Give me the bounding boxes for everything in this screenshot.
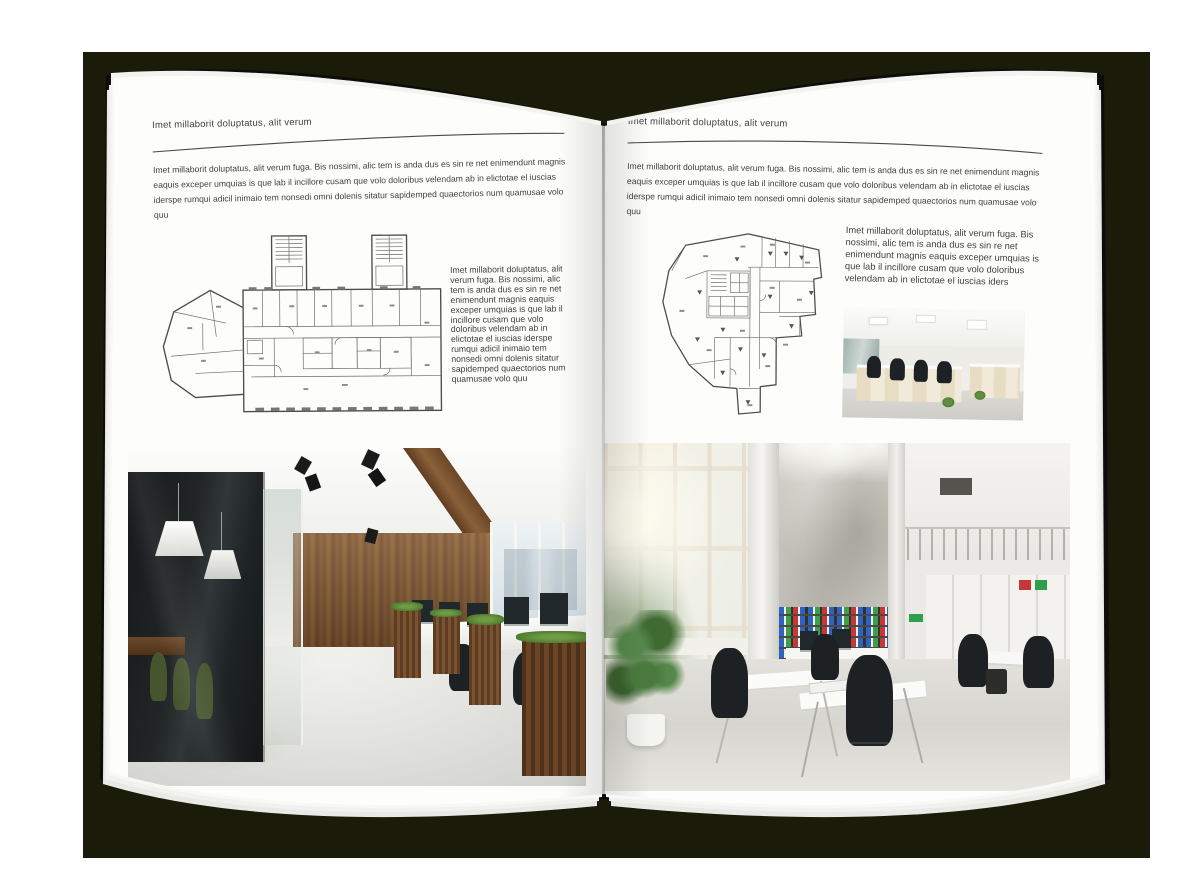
header-rule	[627, 135, 1042, 158]
office-chair	[913, 359, 928, 381]
office-chair	[958, 634, 988, 686]
side-paragraph: Imet millaborit doluptatus, alit verum f…	[450, 264, 570, 385]
exit-sign	[1035, 580, 1047, 589]
office-chair	[890, 358, 905, 380]
planter-grass	[467, 614, 504, 625]
column	[888, 443, 904, 659]
left-page-text-group: Imet millaborit doluptatus, alit verum I…	[152, 111, 584, 223]
left-page: Imet millaborit doluptatus, alit verum I…	[108, 64, 604, 809]
glass-meeting-room	[128, 472, 265, 763]
office-photo-left	[128, 448, 586, 786]
side-paragraph: Imet millaborit doluptatus, alit verum f…	[845, 224, 1048, 289]
wood-planter	[394, 607, 421, 678]
floor-plan-right	[651, 222, 838, 419]
planter-grass	[430, 609, 462, 617]
monitor	[504, 597, 529, 626]
mezzanine-railing	[895, 527, 1070, 560]
office-chair	[711, 648, 748, 718]
glass-reflection	[128, 472, 263, 763]
intro-paragraph: Imet millaborit doluptatus, alit verum f…	[153, 154, 574, 223]
office-chair	[811, 634, 839, 679]
ceiling-light	[916, 314, 936, 323]
monitor	[540, 593, 567, 625]
page-header: Imet millaborit doluptatus, alit verum	[628, 116, 1058, 134]
first-aid-sign	[1019, 580, 1031, 589]
office-photo-small	[842, 307, 1025, 420]
right-page: Imet millaborit doluptatus, alit verum I…	[604, 64, 1100, 809]
brochure-mockup: Imet millaborit doluptatus, alit verum I…	[0, 0, 1200, 891]
air-grille	[940, 478, 973, 495]
book-spine-seam	[602, 126, 605, 794]
planter-grass	[516, 631, 586, 643]
office-chair	[1023, 636, 1053, 688]
planter-grass	[391, 602, 423, 611]
page-header: Imet millaborit doluptatus, alit verum	[152, 111, 582, 131]
chair-base	[851, 742, 888, 744]
office-photo-right	[604, 443, 1070, 791]
ceiling-light	[869, 317, 887, 326]
wood-planter	[433, 614, 460, 675]
wood-planter	[469, 620, 501, 705]
plant-pot	[627, 714, 664, 745]
office-chair	[937, 361, 952, 383]
wood-planter-large	[522, 641, 586, 776]
waste-bin	[986, 669, 1007, 693]
ceiling-light	[967, 319, 987, 329]
potted-plant	[606, 610, 690, 728]
intro-paragraph: Imet millaborit doluptatus, alit verum f…	[626, 159, 1047, 226]
glass-partition	[263, 489, 303, 746]
small-plant	[942, 397, 955, 407]
office-chair	[866, 356, 881, 378]
right-page-text-group: Imet millaborit doluptatus, alit verum I…	[626, 116, 1058, 226]
header-rule	[152, 130, 564, 155]
exit-sign	[909, 614, 923, 622]
floor-plan-left	[157, 229, 448, 419]
wall-downlights	[779, 443, 896, 506]
office-chair	[846, 655, 893, 745]
